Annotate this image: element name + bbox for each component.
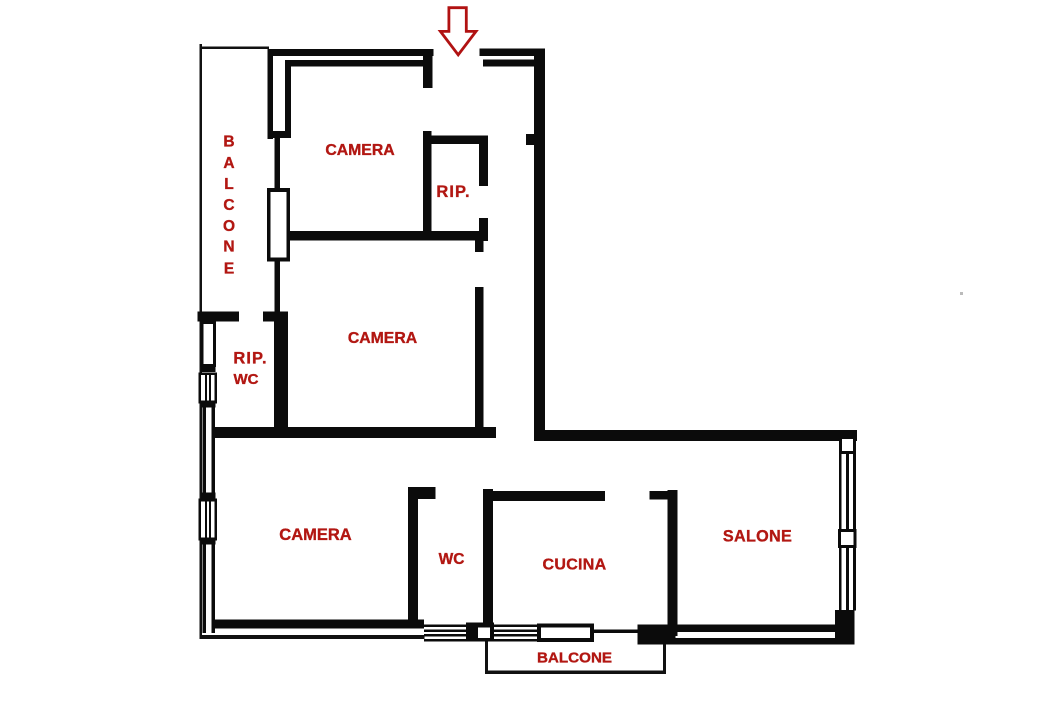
- svg-text:O: O: [223, 218, 235, 235]
- svg-text:B: B: [223, 134, 234, 151]
- svg-text:CUCINA: CUCINA: [542, 557, 606, 574]
- svg-text:E: E: [224, 261, 234, 278]
- svg-text:WC: WC: [439, 551, 465, 568]
- svg-text:BALCONE: BALCONE: [537, 650, 612, 667]
- svg-text:L: L: [224, 176, 233, 193]
- svg-text:N: N: [223, 239, 234, 256]
- svg-text:WC: WC: [234, 371, 259, 388]
- svg-text:RIP.: RIP.: [436, 183, 470, 201]
- svg-text:A: A: [223, 155, 234, 172]
- svg-text:RIP.: RIP.: [233, 350, 267, 368]
- svg-text:CAMERA: CAMERA: [279, 526, 351, 544]
- svg-text:CAMERA: CAMERA: [348, 330, 417, 347]
- svg-text:SALONE: SALONE: [723, 528, 792, 546]
- svg-text:CAMERA: CAMERA: [325, 142, 394, 159]
- svg-text:C: C: [223, 197, 234, 214]
